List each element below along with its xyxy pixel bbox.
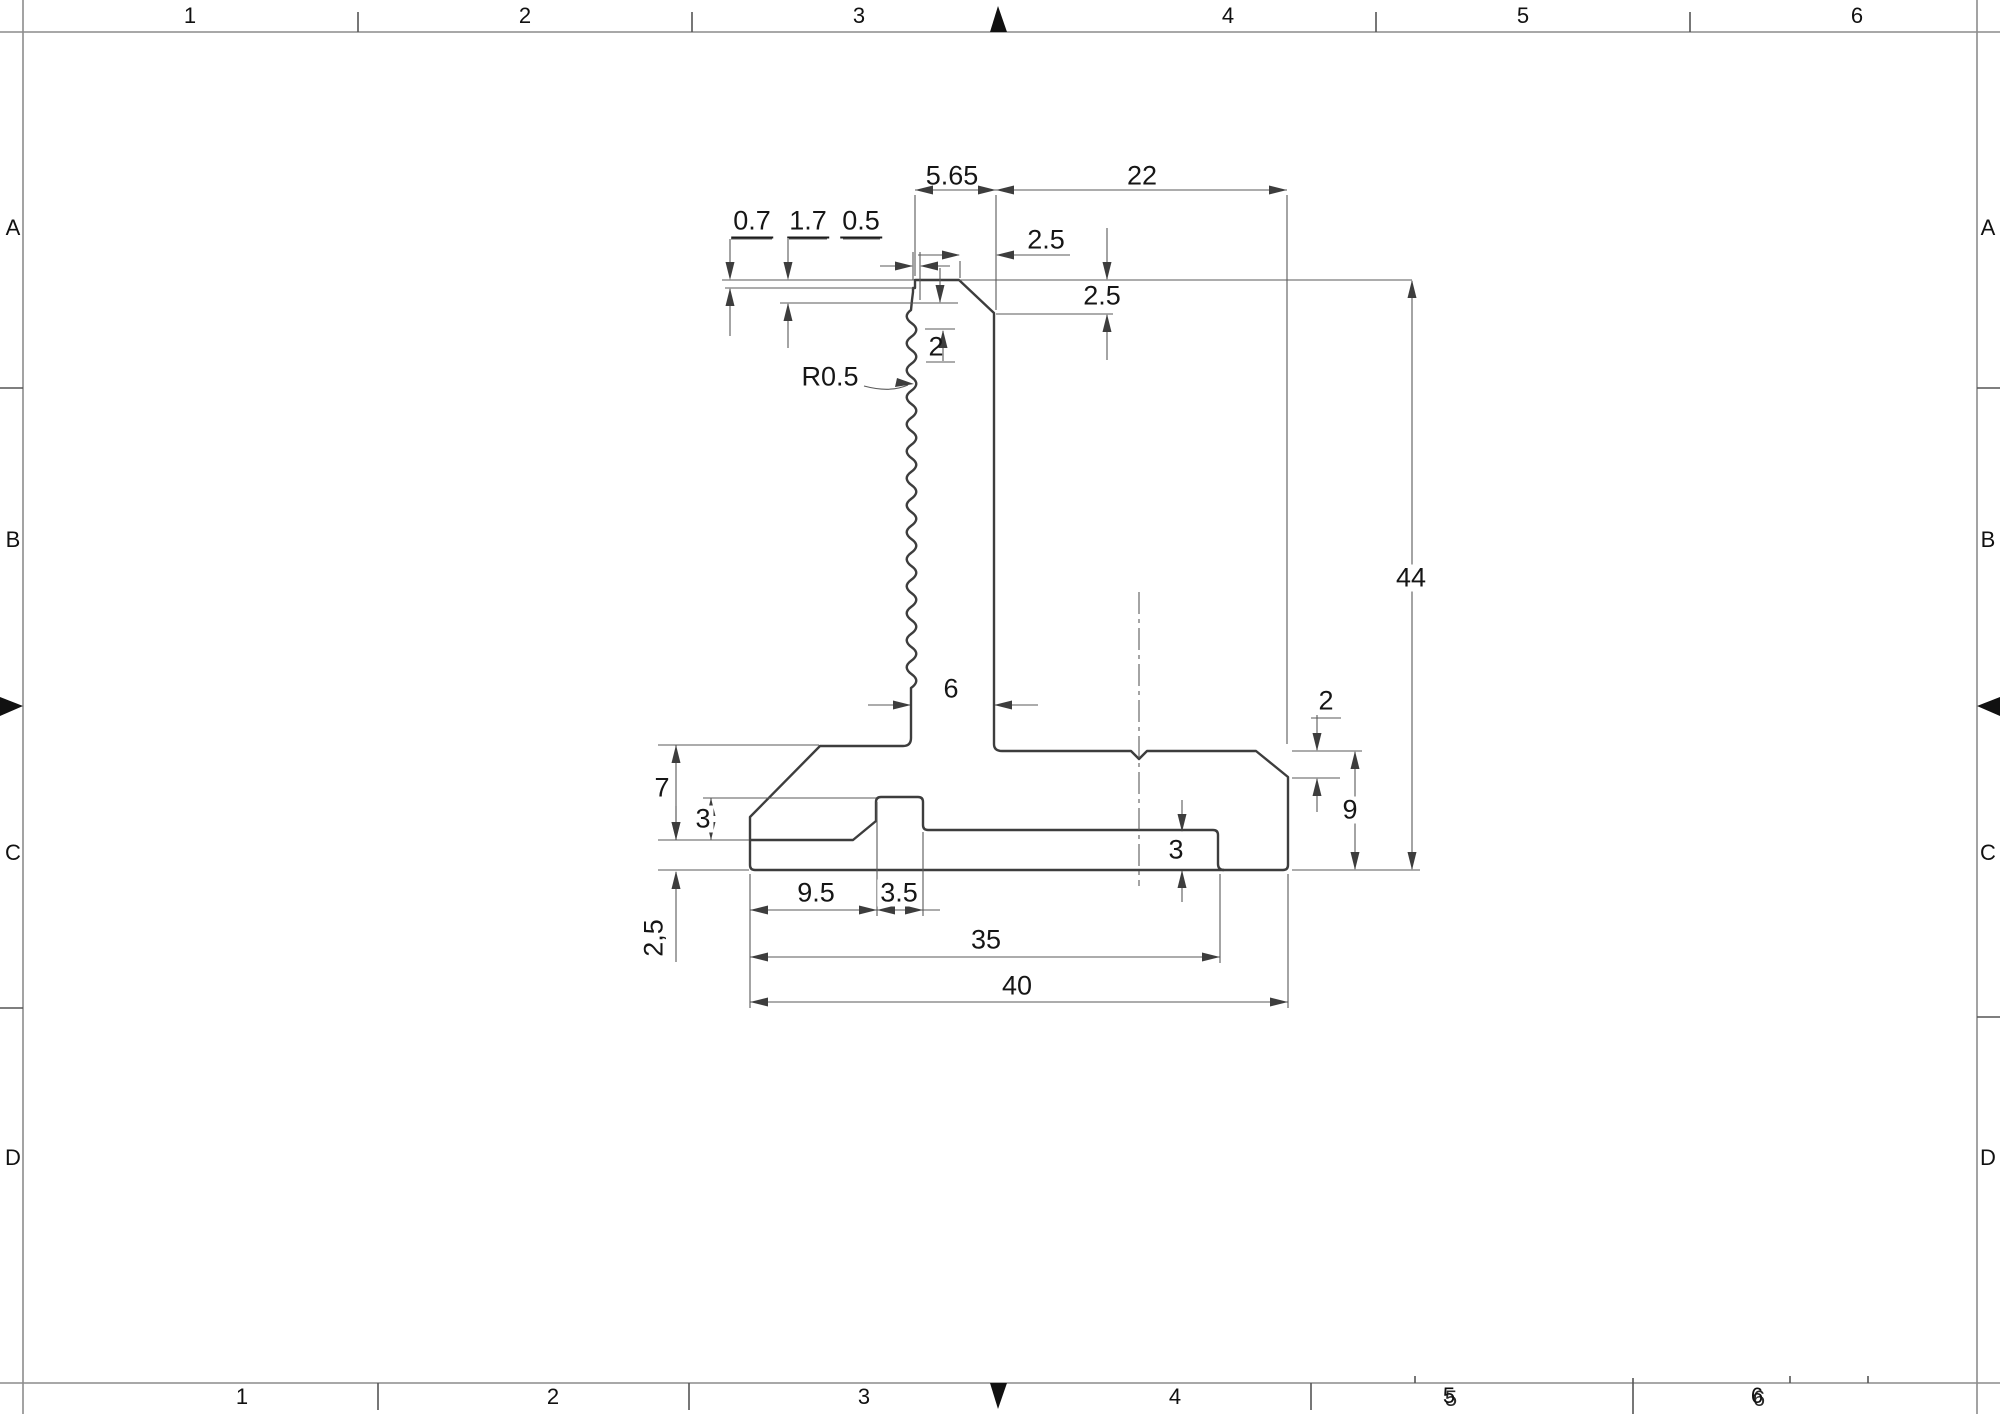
- dim-top-chamfer-depth: 2.5: [1080, 283, 1124, 310]
- dim-inner-width: 35: [968, 927, 1004, 954]
- centering-marks: [0, 6, 2000, 1409]
- zone-top-2: 2: [519, 5, 531, 27]
- dimension-arrows: [672, 186, 1417, 1007]
- zone-top-6: 6: [1851, 5, 1863, 27]
- zone-bottom-2: 2: [547, 1386, 559, 1408]
- dim-serration-pitch: 2: [928, 334, 943, 361]
- dim-right-chamfer: 2: [1318, 688, 1333, 715]
- sheet-frame: [0, 0, 2000, 1414]
- dim-right-groove-depth: 3: [1165, 837, 1186, 864]
- zone-top-3: 3: [853, 5, 865, 27]
- zone-bottom-6: 6: [1751, 1385, 1763, 1407]
- centering-mark-top: [990, 6, 1007, 32]
- dim-serration-radius: R0.5: [801, 364, 858, 391]
- row-left-d: D: [5, 1147, 21, 1169]
- dim-left-shoulder: 7: [651, 775, 672, 802]
- dim-base-right-height: 9: [1339, 797, 1360, 824]
- zone-bottom-1: 1: [236, 1386, 248, 1408]
- dim-head-top-width: 5.65: [926, 163, 979, 190]
- dim-serration-offset: 0.5: [840, 208, 882, 239]
- bottom-groove-profile: [750, 797, 1224, 870]
- zone-top-4: 4: [1222, 5, 1234, 27]
- zone-bottom-4: 4: [1169, 1386, 1181, 1408]
- dim-overall-height: 44: [1393, 565, 1429, 592]
- zone-bottom-5: 5: [1443, 1385, 1455, 1407]
- centering-mark-bottom: [990, 1383, 1007, 1409]
- row-right-d: D: [1980, 1147, 1996, 1169]
- dim-foot-offset: 9.5: [794, 880, 838, 907]
- dim-slot-width: 3.5: [877, 880, 921, 907]
- dim-left-groove-step: 3: [692, 806, 713, 833]
- zone-top-1: 1: [184, 5, 196, 27]
- dim-base-width: 40: [999, 973, 1035, 1000]
- row-left-b: B: [6, 529, 21, 551]
- dim-top-chamfer-width: 2.5: [1027, 227, 1065, 254]
- dim-step-0-7: 0.7: [731, 208, 773, 239]
- row-right-c: C: [1980, 842, 1996, 864]
- row-left-c: C: [5, 842, 21, 864]
- row-right-b: B: [1981, 529, 1996, 551]
- dim-stem-width: 6: [943, 676, 958, 703]
- zone-ticks: [0, 12, 2000, 1414]
- dim-step-1-7: 1.7: [787, 208, 829, 239]
- drawing-canvas: [0, 0, 2000, 1414]
- centering-mark-left: [0, 697, 23, 716]
- centering-mark-right: [1977, 697, 2000, 716]
- extension-lines: [658, 195, 1420, 1008]
- zone-bottom-3: 3: [858, 1386, 870, 1408]
- drawing-sheet: 5.65 22 0.7 1.7 0.5 2.5 2.5 2 R0.5 6 44 …: [0, 0, 2000, 1414]
- dim-top-right-width: 22: [1127, 163, 1157, 190]
- row-left-a: A: [6, 217, 21, 239]
- dim-left-recess-depth: 2,5: [641, 919, 668, 957]
- row-right-a: A: [1981, 217, 1996, 239]
- zone-top-5: 5: [1517, 5, 1529, 27]
